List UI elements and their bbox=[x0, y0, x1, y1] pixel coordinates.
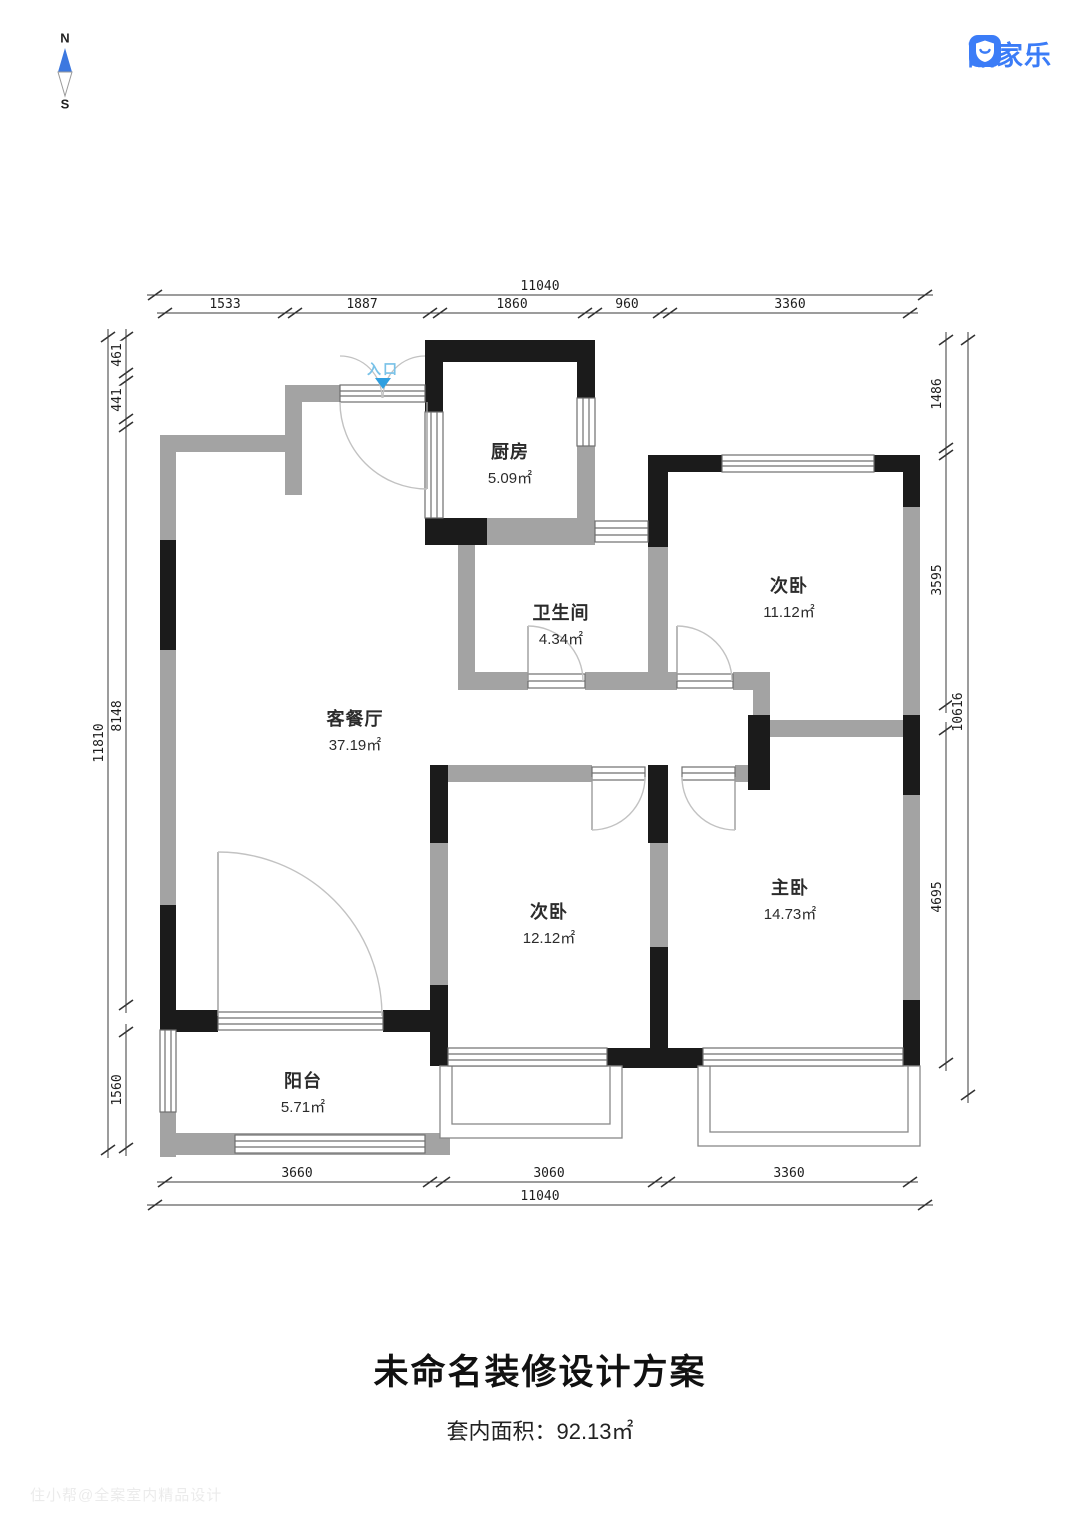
kujiale-logo: 酷家乐 bbox=[968, 34, 1052, 73]
page-title: 未命名装修设计方案 bbox=[373, 1344, 706, 1395]
dim-top-seg-4: 960 bbox=[612, 298, 641, 312]
dim-bottom-seg-2: 3060 bbox=[530, 1167, 567, 1181]
bedroom-s-door-sill bbox=[592, 767, 645, 780]
dim-top-seg-5: 3360 bbox=[771, 298, 808, 312]
kitchen-pass-window bbox=[595, 521, 648, 542]
compass-south-label: S bbox=[61, 97, 70, 112]
bedroom-ne-window bbox=[722, 455, 874, 472]
balcony-bottom-window bbox=[235, 1135, 425, 1153]
walls-grey bbox=[160, 385, 920, 1157]
dim-top-seg-1: 1533 bbox=[206, 298, 243, 312]
bedroom-ne-door bbox=[677, 626, 732, 681]
room-balcony: 阳台 5.71㎡ bbox=[281, 1067, 325, 1117]
room-bathroom: 卫生间 4.34㎡ bbox=[533, 599, 590, 649]
dim-bottom-total: 11040 bbox=[517, 1190, 562, 1204]
dim-top-seg-2: 1887 bbox=[343, 298, 380, 312]
dim-right-total: 10616 bbox=[952, 689, 966, 734]
page-subtitle: 套内面积：92.13㎡ bbox=[446, 1414, 633, 1446]
balcony-door bbox=[218, 852, 382, 1016]
dim-right-seg-2: 3595 bbox=[931, 561, 945, 598]
dim-left-seg-4: 1560 bbox=[111, 1071, 125, 1108]
dim-top-seg-3: 1860 bbox=[493, 298, 530, 312]
entrance-label: 入口 bbox=[367, 359, 399, 379]
bay-window-frames bbox=[440, 1066, 920, 1146]
master-door bbox=[682, 777, 735, 830]
floorplan-page: N S 酷家乐 入口 厨房 5.09㎡ 卫生间 4.34㎡ 客餐厅 37.19㎡… bbox=[0, 0, 1080, 1528]
dim-bottom-seg-3: 3360 bbox=[770, 1167, 807, 1181]
dim-right-seg-1: 1486 bbox=[931, 375, 945, 412]
entry-door bbox=[340, 402, 427, 489]
master-bottom-window bbox=[703, 1048, 903, 1066]
dim-left-seg-1: 461 bbox=[111, 340, 125, 369]
room-living: 客餐厅 37.19㎡ bbox=[327, 705, 384, 755]
dim-left-total: 11810 bbox=[93, 720, 107, 765]
bedroom-s-door bbox=[592, 777, 645, 830]
dim-bottom-seg-1: 3660 bbox=[278, 1167, 315, 1181]
kujiale-logo-icon bbox=[968, 34, 1002, 68]
bedroom-ne-door-sill bbox=[677, 674, 733, 688]
floorplan-drawing bbox=[0, 0, 1080, 1528]
master-door-sill bbox=[682, 767, 735, 780]
balcony-slider-sill bbox=[218, 1012, 383, 1030]
entrance-arrow-icon bbox=[375, 378, 391, 389]
room-bedroom-ne: 次卧 11.12㎡ bbox=[763, 572, 814, 622]
kitchen-right-window bbox=[577, 398, 595, 446]
bathroom-door-sill bbox=[528, 674, 585, 688]
room-bedroom-s: 次卧 12.12㎡ bbox=[523, 898, 576, 948]
balcony-left-window bbox=[160, 1030, 176, 1112]
watermark: 住小帮@全案室内精品设计 bbox=[30, 1484, 222, 1505]
dim-right-seg-3: 4695 bbox=[931, 878, 945, 915]
dim-top-total: 11040 bbox=[517, 280, 562, 294]
compass-north-label: N bbox=[60, 31, 69, 46]
dim-left-seg-3: 8148 bbox=[111, 697, 125, 734]
bedroom-s-bottom-window bbox=[448, 1048, 607, 1066]
kitchen-sliding-door bbox=[425, 412, 443, 518]
compass-needle bbox=[58, 48, 72, 96]
room-master: 主卧 14.73㎡ bbox=[764, 874, 817, 924]
room-kitchen: 厨房 5.09㎡ bbox=[488, 438, 532, 488]
dim-left-seg-2: 441 bbox=[111, 385, 125, 414]
